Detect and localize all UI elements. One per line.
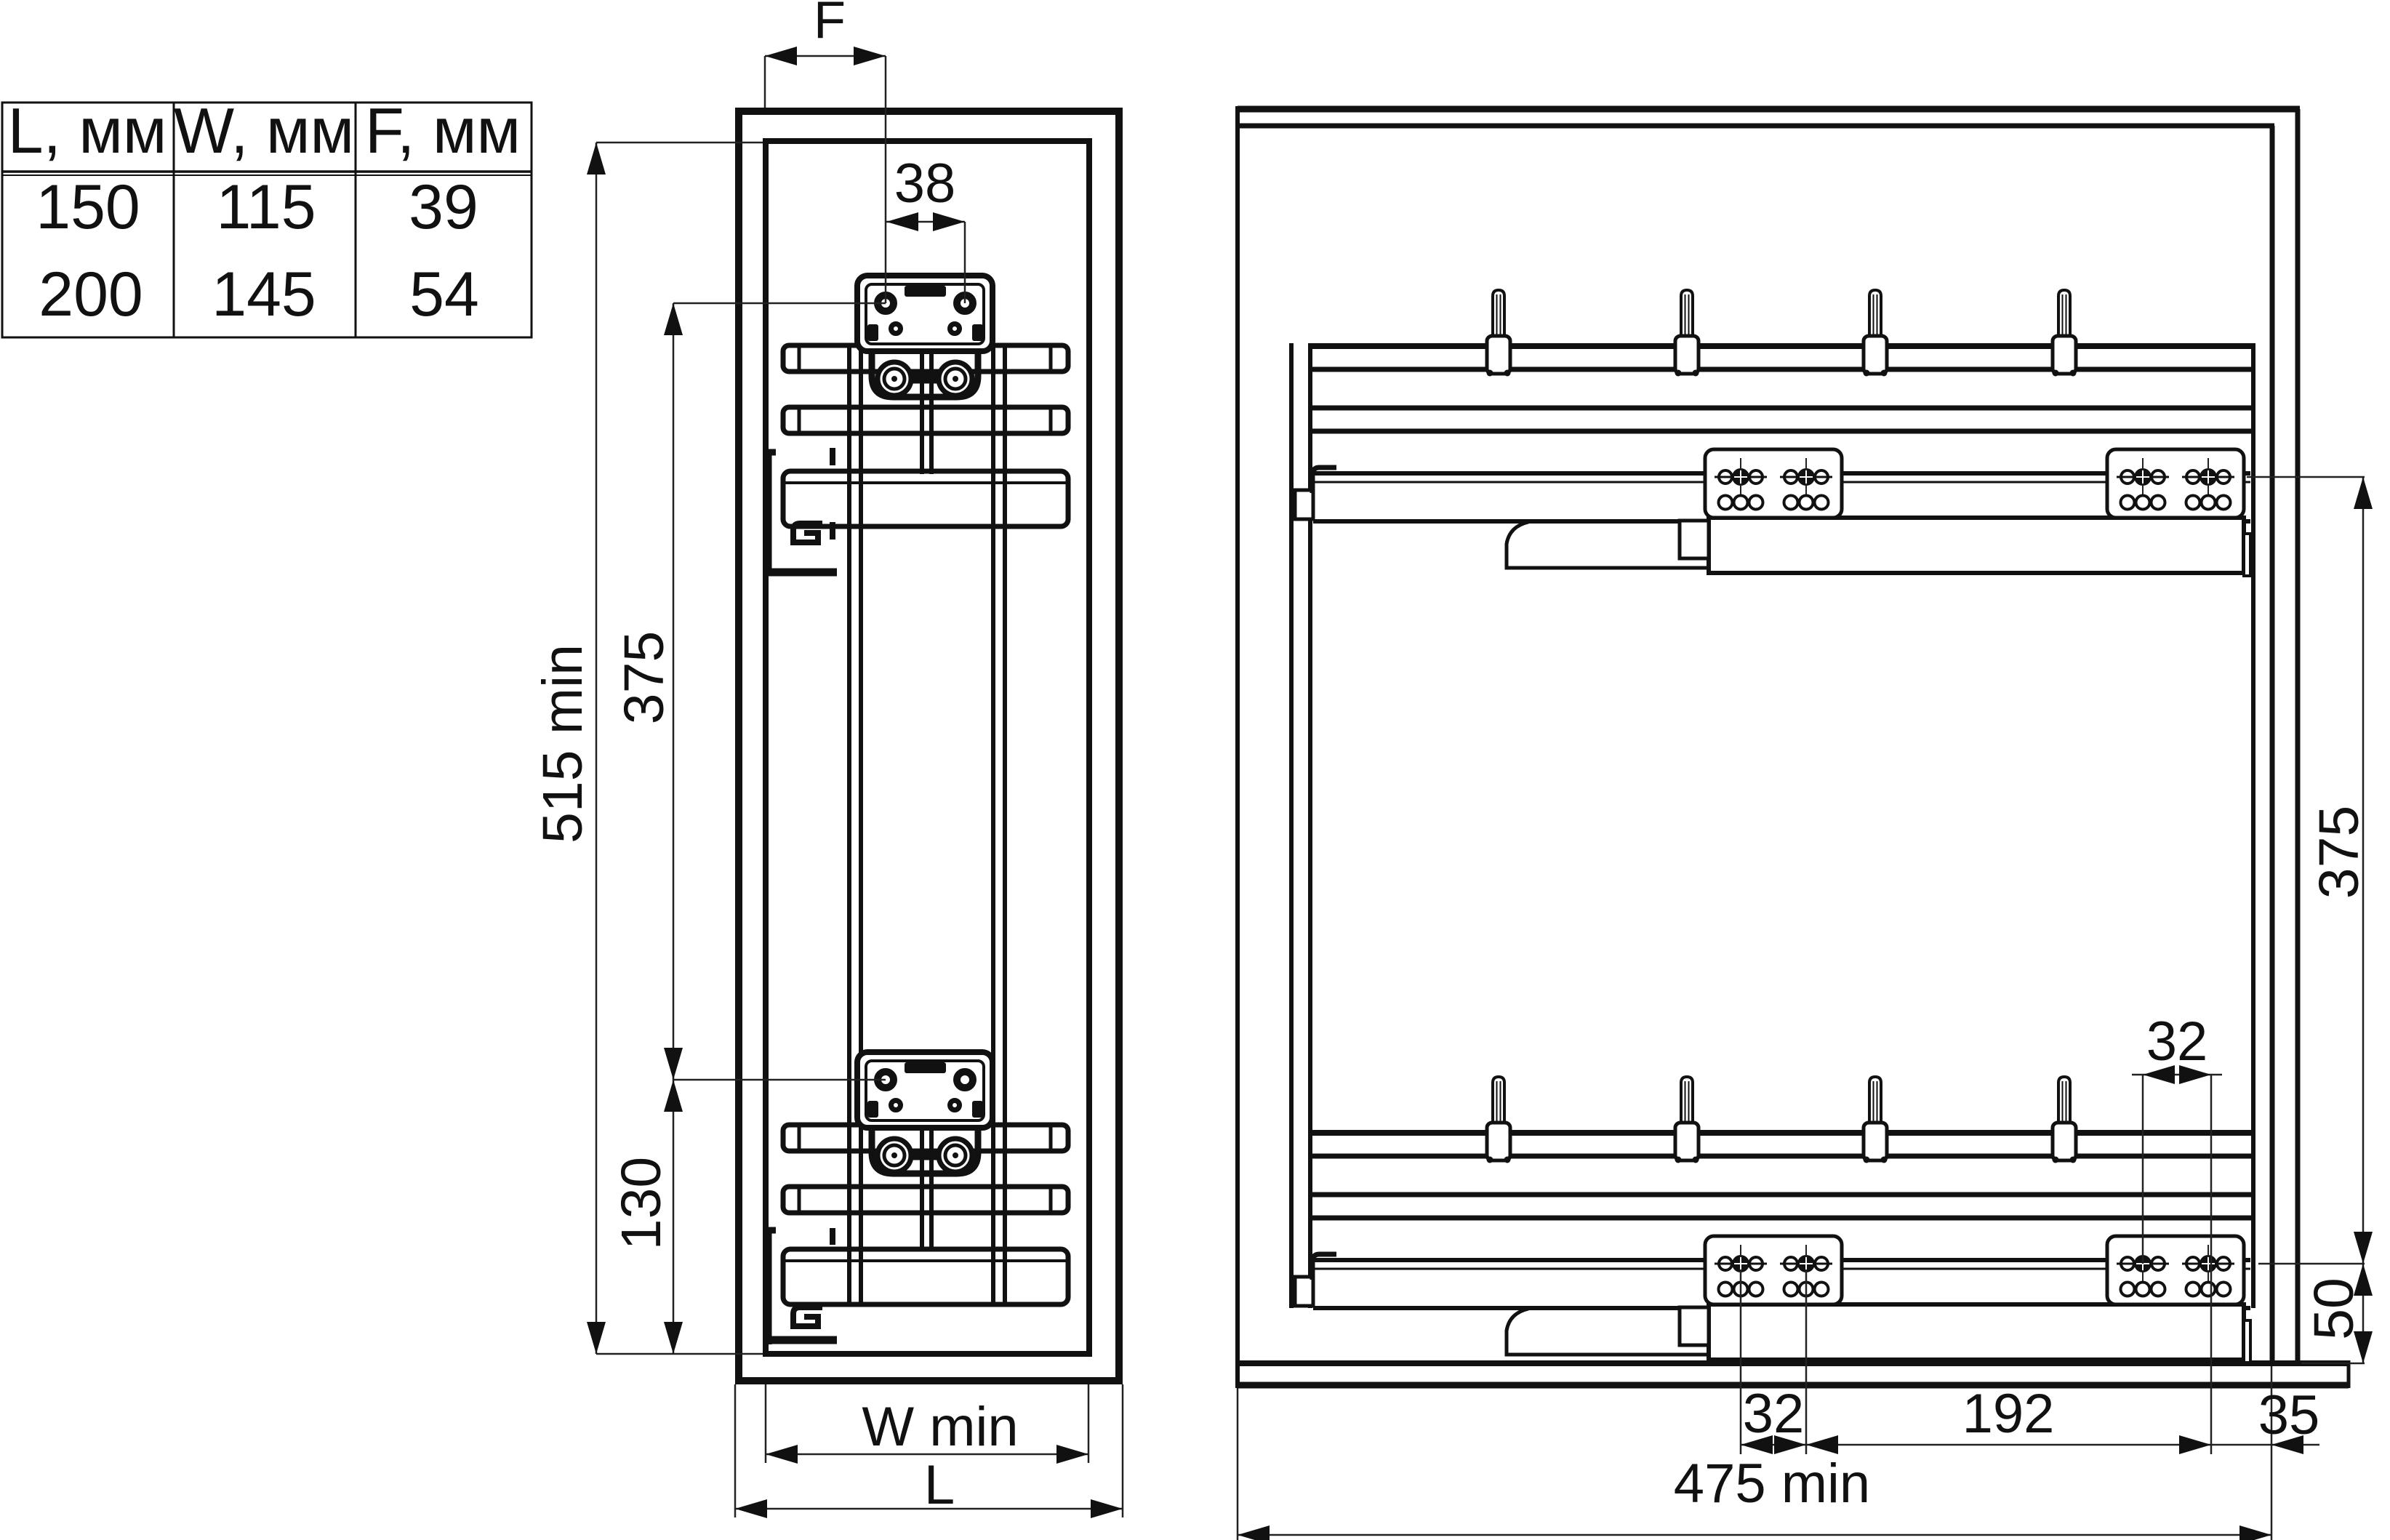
svg-text:50: 50: [2303, 1278, 2365, 1340]
svg-text:38: 38: [894, 153, 956, 214]
svg-text:375: 375: [2308, 806, 2370, 899]
svg-text:115: 115: [216, 172, 316, 242]
svg-text:L, мм: L, мм: [8, 95, 167, 167]
svg-text:W min: W min: [862, 1396, 1018, 1458]
svg-text:L: L: [924, 1454, 955, 1516]
svg-text:145: 145: [212, 260, 316, 329]
svg-text:W, мм: W, мм: [174, 95, 354, 167]
svg-text:192: 192: [1962, 1383, 2055, 1445]
svg-text:F: F: [814, 0, 846, 49]
svg-text:39: 39: [409, 172, 478, 242]
svg-text:54: 54: [409, 260, 479, 329]
svg-text:515 min: 515 min: [532, 644, 594, 843]
svg-text:475 min: 475 min: [1674, 1453, 1870, 1515]
svg-text:200: 200: [39, 260, 143, 329]
svg-text:35: 35: [2258, 1384, 2320, 1446]
svg-text:32: 32: [2146, 1011, 2208, 1072]
svg-text:130: 130: [610, 1157, 673, 1250]
svg-text:150: 150: [36, 172, 140, 242]
svg-text:375: 375: [613, 631, 675, 724]
svg-text:32: 32: [1743, 1383, 1805, 1445]
svg-text:F, мм: F, мм: [365, 95, 521, 167]
